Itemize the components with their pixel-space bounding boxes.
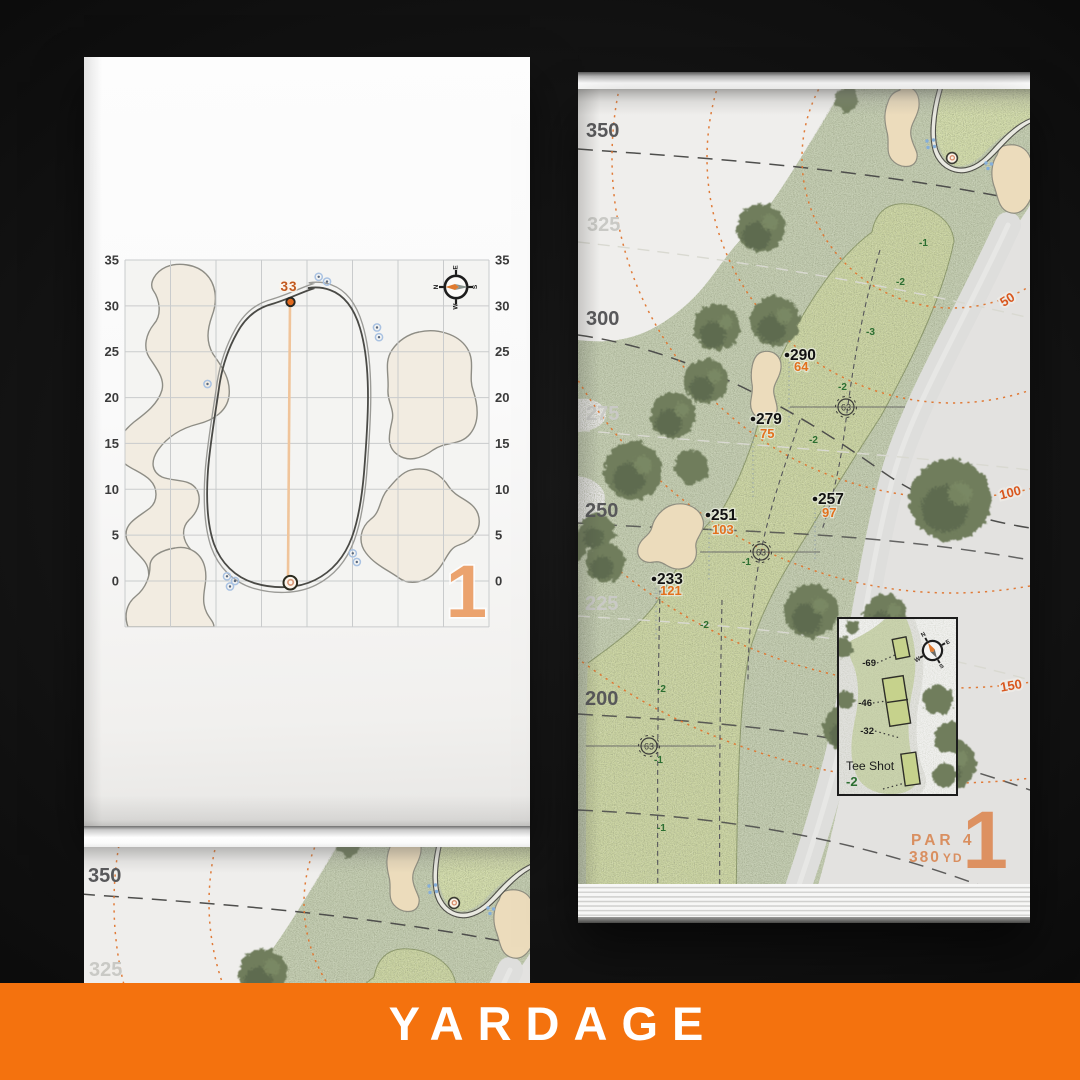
svg-text:30: 30 (105, 298, 119, 313)
svg-text:0: 0 (495, 574, 502, 589)
svg-text:35: 35 (495, 253, 509, 268)
svg-text:1: 1 (446, 550, 487, 633)
svg-text:-69: -69 (862, 658, 876, 669)
svg-text:15: 15 (105, 436, 119, 451)
svg-text:380YD: 380YD (909, 849, 964, 866)
svg-text:N: N (433, 284, 440, 289)
svg-text:-46: -46 (858, 698, 872, 709)
svg-text:10: 10 (495, 482, 509, 497)
svg-text:5: 5 (112, 528, 119, 543)
svg-text:E: E (453, 265, 460, 270)
svg-text:20: 20 (495, 390, 509, 405)
svg-text:5: 5 (495, 528, 502, 543)
svg-text:25: 25 (105, 344, 119, 359)
svg-text:10: 10 (105, 482, 119, 497)
svg-text:1: 1 (962, 795, 1008, 886)
svg-text:W: W (453, 303, 460, 310)
svg-text:35: 35 (105, 253, 119, 268)
svg-text:33: 33 (280, 279, 297, 294)
svg-text:Tee Shot: Tee Shot (846, 759, 895, 773)
svg-text:-32: -32 (860, 726, 874, 737)
svg-text:15: 15 (495, 436, 509, 451)
svg-text:25: 25 (495, 344, 509, 359)
svg-text:0: 0 (112, 574, 119, 589)
svg-text:-2: -2 (846, 774, 858, 789)
svg-text:30: 30 (495, 298, 509, 313)
svg-text:20: 20 (105, 390, 119, 405)
svg-text:S: S (472, 284, 479, 289)
